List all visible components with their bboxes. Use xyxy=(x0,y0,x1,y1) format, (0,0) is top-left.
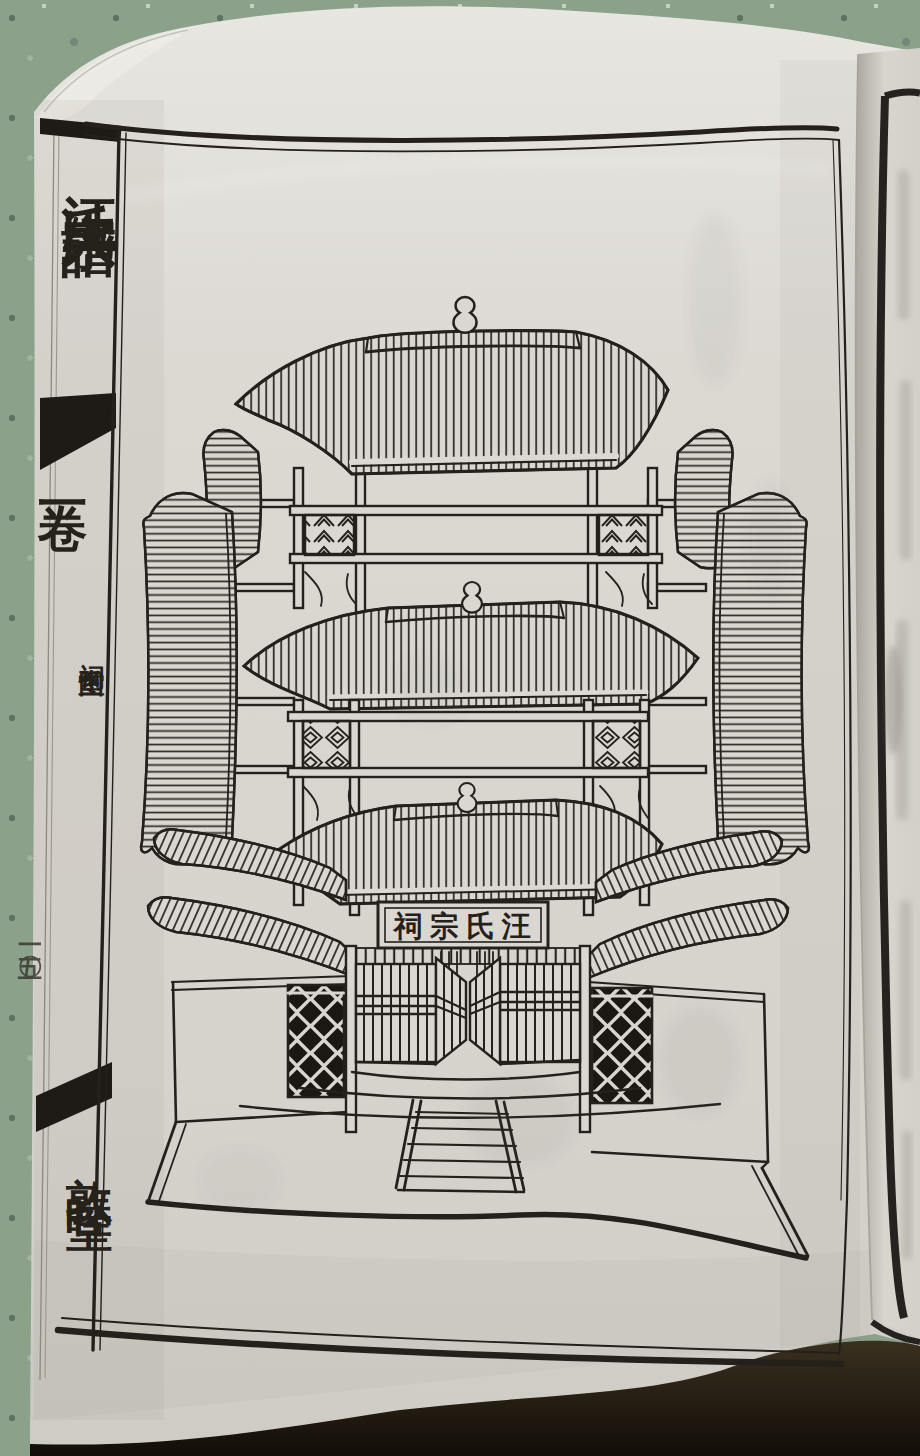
gate-panel-left xyxy=(356,964,436,1062)
spine-leaf-number: 一〇五 xyxy=(14,932,46,944)
photo-stage: 祠宗氏汪 汪氏宗譜 卷一 祠堂图 一〇五 敦睦堂 xyxy=(0,0,920,1456)
tier1-post xyxy=(588,468,597,613)
gate-transom-bars xyxy=(356,948,580,964)
hall-plaque-text: 祠宗氏汪 xyxy=(392,910,538,942)
book-page-rendering: 祠宗氏汪 xyxy=(0,0,920,1456)
photo-of-genealogy-book-page: { "book_page": { "spine": { "title": "汪氏… xyxy=(0,0,920,1456)
hall-plaque: 祠宗氏汪 xyxy=(378,902,548,948)
tier2-beam xyxy=(288,712,648,721)
tall-wing-left xyxy=(141,493,236,864)
gourd-finial-top xyxy=(453,297,476,333)
diamond-panel-right xyxy=(593,721,640,768)
lattice-panel-right xyxy=(592,988,652,1103)
gourd-finial-middle xyxy=(462,582,482,613)
spine-book-title: 汪氏宗譜 xyxy=(52,150,128,182)
lattice-panel-left xyxy=(288,985,344,1097)
gate-post-left xyxy=(346,946,356,1132)
tier1-post xyxy=(356,468,365,613)
spine-volume-label: 卷一 xyxy=(30,464,97,492)
chevron-panel-left xyxy=(305,515,354,555)
spine-section-caption: 祠堂图 xyxy=(74,642,109,657)
chevron-panel-right xyxy=(599,515,648,555)
gate-post-right xyxy=(580,946,590,1132)
tier1-post xyxy=(648,468,657,608)
tier2-beam xyxy=(288,768,648,777)
diamond-panel-left xyxy=(303,721,350,768)
gourd-finial-lower xyxy=(458,783,477,812)
tier1-post xyxy=(294,468,303,608)
tier1-beam xyxy=(290,506,662,515)
spine-hall-name: 敦睦堂 xyxy=(58,1140,120,1182)
gate-panel-right xyxy=(500,964,580,1062)
